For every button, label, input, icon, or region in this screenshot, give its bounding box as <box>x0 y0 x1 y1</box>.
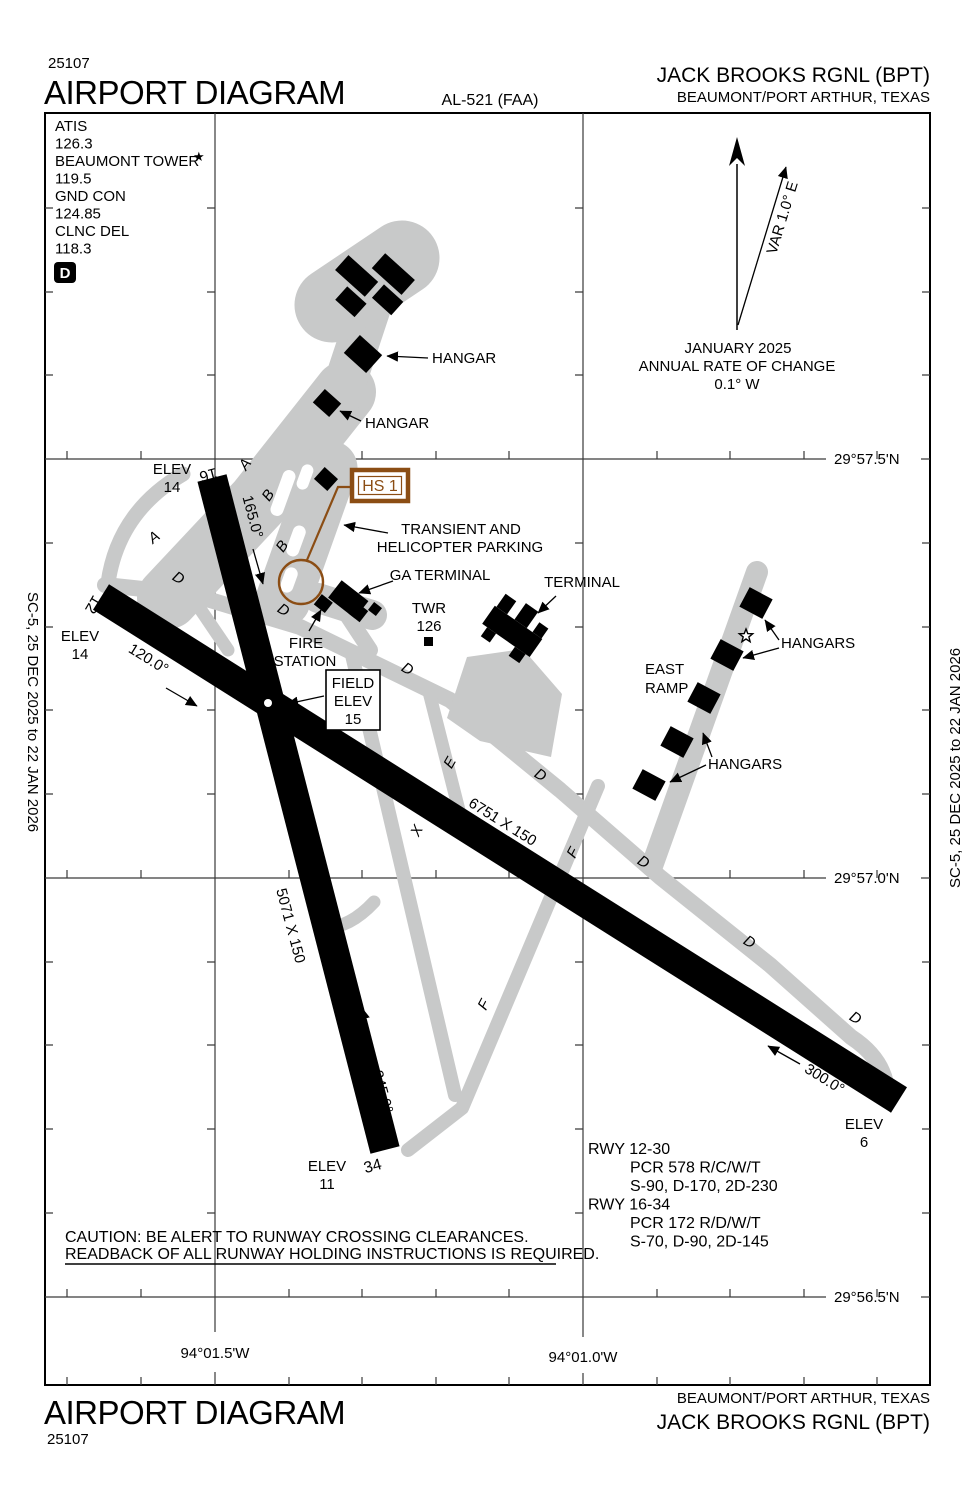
transient-parking-label-2: HELICOPTER PARKING <box>377 539 543 556</box>
rwy-12-30-strengths: S-90, D-170, 2D-230 <box>630 1178 778 1195</box>
rwy-16-34-strengths: S-70, D-90, 2D-145 <box>630 1234 769 1251</box>
caution-note: CAUTION: BE ALERT TO RUNWAY CROSSING CLE… <box>65 1229 599 1264</box>
twr-freq: 126 <box>416 618 441 635</box>
header-city: BEAUMONT/PORT ARTHUR, TEXAS <box>677 89 930 106</box>
atis-label: ATIS <box>55 118 87 135</box>
elev-16-value: 14 <box>164 479 181 496</box>
lat-label-3: 29°56.5'N <box>834 1289 900 1306</box>
rwy-16-34-title: RWY 16-34 <box>588 1197 670 1214</box>
taxiway-letter: X <box>407 822 428 841</box>
taxiway-letter: F <box>474 996 494 1013</box>
al-number: AL-521 (FAA) <box>442 92 539 109</box>
atis-freq: 126.3 <box>55 136 93 153</box>
annual-rate-label: ANNUAL RATE OF CHANGE <box>639 358 836 375</box>
runway-data-block: RWY 12-30 PCR 578 R/C/W/T S-90, D-170, 2… <box>588 1141 778 1251</box>
rwy-12-30-pcr: PCR 578 R/C/W/T <box>630 1160 761 1177</box>
lon-label-2: 94°01.0'W <box>549 1349 619 1366</box>
hot-spot-label: HS 1 <box>362 478 398 495</box>
footer: AIRPORT DIAGRAM 25107 BEAUMONT/PORT ARTH… <box>44 1390 930 1448</box>
east-ramp-label-1: EAST <box>645 661 684 678</box>
north-arrowhead-icon <box>729 137 745 166</box>
graticule <box>45 113 930 1385</box>
elev-12-value: 14 <box>72 646 89 663</box>
margin-note-right: SC-5, 25 DEC 2025 to 22 JAN 2026 <box>947 648 964 888</box>
elev-30-label: ELEV <box>845 1116 883 1133</box>
caution-line-2: READBACK OF ALL RUNWAY HOLDING INSTRUCTI… <box>65 1246 599 1263</box>
footer-title: AIRPORT DIAGRAM <box>44 1394 345 1431</box>
north-indicator: VAR 1.0° E JANUARY 2025 ANNUAL RATE OF C… <box>639 137 836 393</box>
tower-freq: 119.5 <box>55 171 91 188</box>
hangar-label-lower: HANGAR <box>365 415 429 432</box>
clnc-del-label: CLNC DEL <box>55 223 129 240</box>
transient-parking-label-1: TRANSIENT AND <box>401 521 521 538</box>
variation-label: VAR 1.0° E <box>764 180 802 257</box>
terminal-label: TERMINAL <box>544 574 620 591</box>
hangars-east-label-lower: HANGARS <box>708 756 782 773</box>
rwy-16-34-pcr: PCR 172 R/D/W/T <box>630 1215 761 1232</box>
header-airport-name: JACK BROOKS RGNL (BPT) <box>657 64 930 87</box>
footer-chart-code: 25107 <box>47 1431 89 1448</box>
tower-label: BEAUMONT TOWER <box>55 153 199 170</box>
rwy-12-30-title: RWY 12-30 <box>588 1141 670 1158</box>
field-elev-box: FIELD ELEV 15 <box>326 670 380 730</box>
graticule-ticks <box>45 208 930 1385</box>
elev-16-label: ELEV <box>153 461 191 478</box>
comm-box: ATIS 126.3 BEAUMONT TOWER ★ 119.5 GND CO… <box>54 118 205 283</box>
caution-line-1: CAUTION: BE ALERT TO RUNWAY CROSSING CLE… <box>65 1229 529 1246</box>
field-elev-point <box>264 699 272 707</box>
elev-12-label: ELEV <box>61 628 99 645</box>
taxiway-letter: A <box>144 528 163 548</box>
fire-station-label-2: STATION <box>274 653 337 670</box>
annual-rate-value: 0.1° W <box>714 376 760 393</box>
chart-border <box>45 113 930 1385</box>
lon-label-1: 94°01.5'W <box>181 1345 251 1362</box>
gnd-con-label: GND CON <box>55 188 126 205</box>
twr-label: TWR <box>412 600 446 617</box>
airport-diagram-page: 25107 AIRPORT DIAGRAM AL-521 (FAA) JACK … <box>0 0 978 1500</box>
elev-34-value: 11 <box>319 1176 335 1193</box>
field-elev-line1: FIELD <box>332 675 375 692</box>
hangars-east-label-upper: HANGARS <box>781 635 855 652</box>
east-ramp-label-2: RAMP <box>645 680 688 697</box>
header-chart-code: 25107 <box>48 55 90 72</box>
fire-station-label-1: FIRE <box>289 635 323 652</box>
lat-label-2: 29°57.0'N <box>834 870 900 887</box>
hangar-label-upper: HANGAR <box>432 350 496 367</box>
elev-34-label: ELEV <box>308 1158 346 1175</box>
gnd-con-freq: 124.85 <box>55 206 101 223</box>
tower-building <box>424 637 433 646</box>
page-title: AIRPORT DIAGRAM <box>44 74 345 111</box>
tower-star-icon: ★ <box>193 149 205 164</box>
field-elev-line3: 15 <box>345 711 362 728</box>
magvar-date: JANUARY 2025 <box>684 340 791 357</box>
footer-airport-name: JACK BROOKS RGNL (BPT) <box>657 1411 930 1434</box>
runway-34-number: 34 <box>362 1156 384 1177</box>
terminal-apron <box>447 649 562 757</box>
field-elev-line2: ELEV <box>334 693 372 710</box>
elev-30-value: 6 <box>860 1134 868 1151</box>
runway-16-34-dimensions: 5071 X 150 <box>272 887 308 966</box>
ga-terminal-label: GA TERMINAL <box>390 567 491 584</box>
footer-city: BEAUMONT/PORT ARTHUR, TEXAS <box>677 1390 930 1407</box>
header: 25107 AIRPORT DIAGRAM AL-521 (FAA) JACK … <box>44 55 930 111</box>
lat-label-1: 29°57.5'N <box>834 451 900 468</box>
east-ramp <box>652 572 757 866</box>
margin-note-left: SC-5, 25 DEC 2025 to 22 JAN 2026 <box>24 592 41 832</box>
airport-diagram-chart: 25107 AIRPORT DIAGRAM AL-521 (FAA) JACK … <box>0 0 978 1500</box>
datalink-letter: D <box>60 265 71 282</box>
clnc-del-freq: 118.3 <box>55 241 91 258</box>
